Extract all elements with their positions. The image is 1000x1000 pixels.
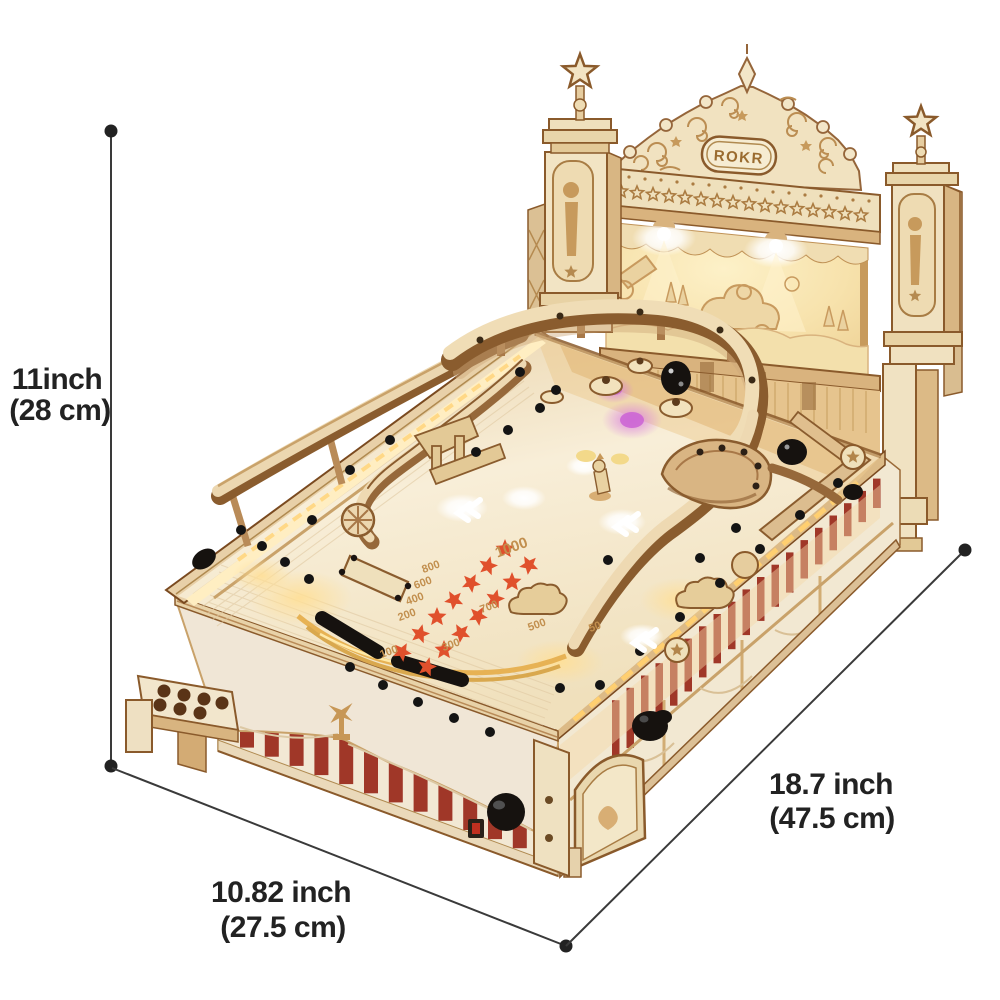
svg-text:(28 cm): (28 cm) <box>9 394 111 427</box>
svg-text:18.7 inch: 18.7 inch <box>769 768 893 801</box>
svg-text:ROKR: ROKR <box>713 147 764 167</box>
svg-text:10.82 inch: 10.82 inch <box>211 876 351 909</box>
svg-text:11inch: 11inch <box>12 363 102 396</box>
svg-text:(47.5 cm): (47.5 cm) <box>769 802 895 835</box>
svg-text:(27.5 cm): (27.5 cm) <box>220 911 346 944</box>
